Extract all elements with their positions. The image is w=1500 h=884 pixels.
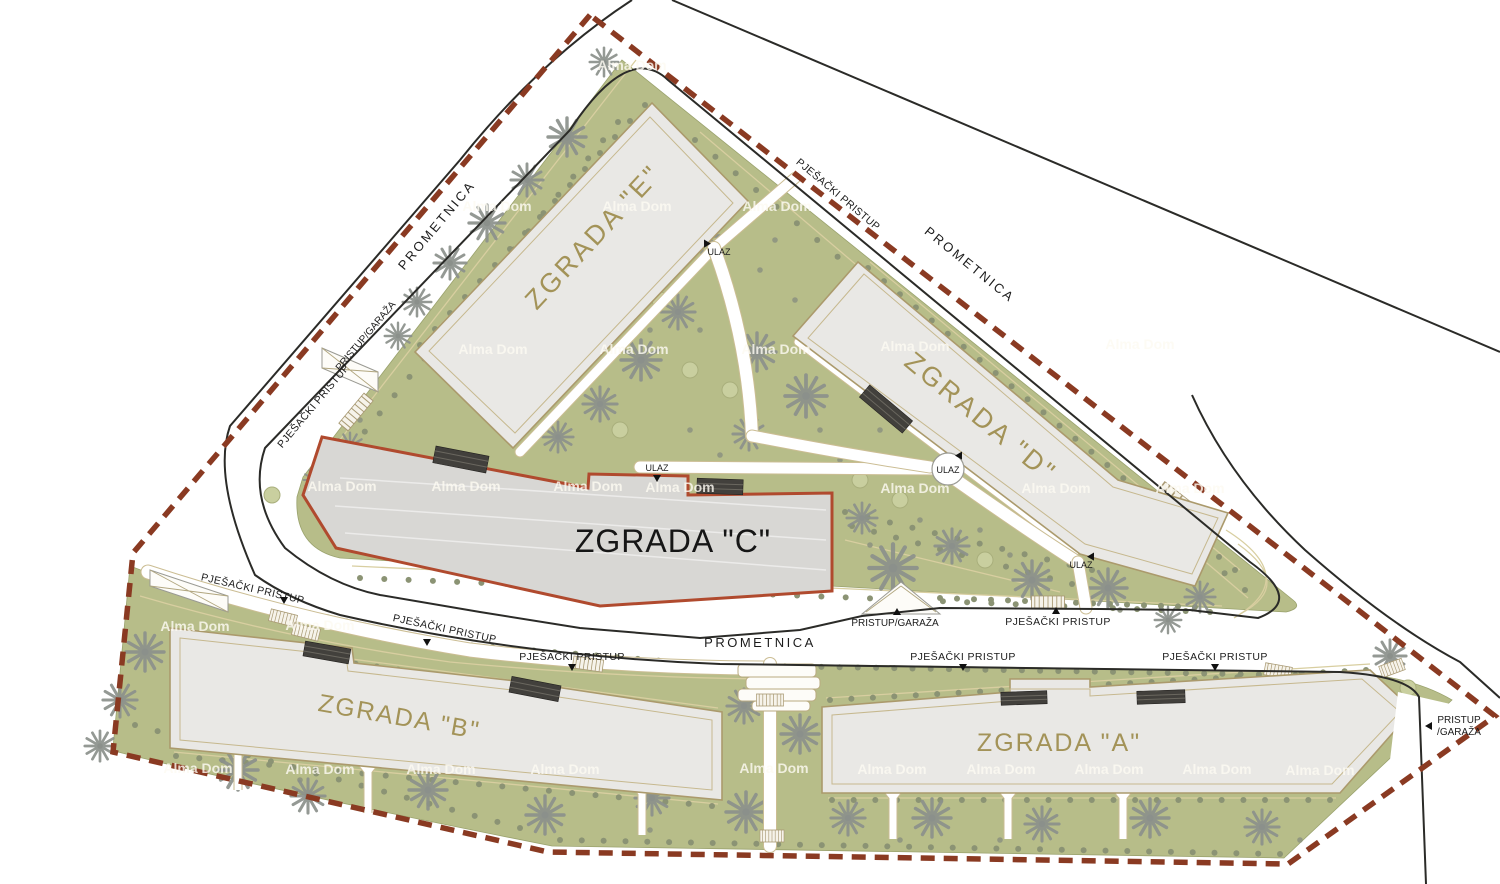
road-label-east: PROMETNICA (922, 224, 1018, 306)
hedge-dot (579, 837, 585, 843)
hedge-dot (1255, 851, 1261, 857)
hedge-dot (829, 797, 835, 803)
hedge-dot (870, 695, 876, 701)
hedge-dot (381, 576, 387, 582)
hedge-dot (1262, 797, 1268, 803)
shrub-dot (917, 517, 923, 523)
hedge-dot (794, 220, 800, 226)
hedge-dot (155, 728, 161, 734)
watermark-text: Alma Dom (553, 478, 622, 494)
stairs-icon (1032, 596, 1065, 608)
hedge-dot (971, 596, 977, 602)
watermark-text: Alma Dom (599, 341, 668, 357)
hedge-dot (937, 595, 943, 601)
stairs-icon (757, 694, 784, 706)
hedge-dot (644, 839, 650, 845)
hedge-dot (863, 843, 869, 849)
hedge-dot (406, 577, 412, 583)
site-plan-page: PROMETNICA PROMETNICA PROMETNICA PJEŠAČK… (0, 0, 1500, 884)
hedge-dot (981, 797, 987, 803)
hedge-dot (449, 807, 455, 813)
shrub-dot (877, 427, 883, 433)
hedge-dot (1141, 602, 1147, 608)
hedge-dot (1175, 603, 1181, 609)
watermark-text: Alma Dom (742, 198, 811, 214)
watermark-text: Alma Dom (645, 479, 714, 495)
hedge-dot (842, 509, 848, 515)
hedge-dot (1232, 567, 1238, 573)
shrub-dot (717, 452, 723, 458)
watermark-text: Alma Dom (163, 760, 232, 776)
hedge-dot (1168, 849, 1174, 855)
hedge-dot (934, 691, 940, 697)
hedge-dot (585, 155, 591, 161)
hedge-dot (988, 597, 994, 603)
watermark-text: Alma Dom (880, 338, 949, 354)
hedge-dot (819, 842, 825, 848)
bush-icon (977, 552, 993, 568)
watermark-text: Alma Dom (739, 760, 808, 776)
shrub-dot (997, 837, 1003, 843)
shrub-dot (977, 527, 983, 533)
hedge-dot (600, 137, 606, 143)
hedge-dot (887, 520, 893, 526)
hedge-dot (1005, 597, 1011, 603)
hedge-dot (906, 844, 912, 850)
pedestrian-access-label-south-1: PJEŠAČKI PRISTUP (519, 650, 625, 663)
hedge-dot (733, 170, 739, 176)
watermark-text: Alma Dom (1182, 761, 1251, 777)
hedge-dot (377, 410, 383, 416)
hedge-dot (909, 525, 915, 531)
hedge-dot (709, 803, 715, 809)
watermark-text: Alma Dom (530, 761, 599, 777)
shrub-dot (1297, 837, 1303, 843)
hedge-dot (517, 825, 523, 831)
hedge-dot (557, 837, 563, 843)
hedge-dot (392, 392, 398, 398)
hedge-dot (692, 137, 698, 143)
hedge-dot (362, 429, 368, 435)
hedge-dot (1013, 601, 1019, 607)
hedge-dot (1175, 797, 1181, 803)
hedge-dot (381, 789, 387, 795)
hedge-dot (1069, 581, 1075, 587)
hedge-dot (1212, 850, 1218, 856)
hedge-dot (1104, 462, 1110, 468)
hedge-dot (570, 174, 576, 180)
hedge-dot (1305, 797, 1311, 803)
hedge-dot (1041, 409, 1047, 415)
hedge-dot (407, 374, 413, 380)
hedge-dot (1219, 797, 1225, 803)
hedge-dot (884, 843, 890, 849)
hedge-dot (383, 773, 389, 779)
hedge-dot (959, 797, 965, 803)
hedge-dot (1081, 847, 1087, 853)
hedge-dot (494, 819, 500, 825)
hedge-dot (1072, 436, 1078, 442)
hedge-dot (950, 845, 956, 851)
watermark-text: Alma Dom (857, 761, 926, 777)
hedge-dot (499, 783, 505, 789)
hedge-dot (1219, 671, 1225, 677)
hedge-dot (1277, 851, 1283, 857)
shrub-dot (867, 542, 873, 548)
shrub-dot (687, 427, 693, 433)
hedge-dot (1146, 849, 1152, 855)
hedge-dot (1233, 850, 1239, 856)
hedge-dot (954, 596, 960, 602)
hedge-dot (1197, 797, 1203, 803)
watermark-text: Alma Dom (880, 480, 949, 496)
hedge-dot (993, 846, 999, 852)
hedge-dot (173, 753, 179, 759)
hedge-dot (569, 790, 575, 796)
watermark-text: Alma Dom (1155, 480, 1224, 496)
watermark-text: Alma Dom (406, 761, 475, 777)
hedge-dot (891, 693, 897, 699)
hedge-dot (915, 540, 921, 546)
hedge-dot (430, 578, 436, 584)
building-a-label: ZGRADA "A" (977, 729, 1141, 757)
hedge-dot (623, 838, 629, 844)
hedge-dot (1240, 797, 1246, 803)
pedestrian-access-label-central: PJEŠAČKI PRISTUP (1005, 615, 1111, 628)
shrub-dot (897, 837, 903, 843)
watermark-text: Alma Dom (741, 341, 810, 357)
hedge-dot (835, 254, 841, 260)
hedge-dot (1044, 557, 1050, 563)
hedge-dot (688, 840, 694, 846)
hedge-dot (1059, 847, 1065, 853)
entrance-label-building-d-circle: ULAZ (936, 465, 960, 475)
hedge-dot (893, 535, 899, 541)
hedge-dot (336, 777, 342, 783)
hedge-dot (841, 843, 847, 849)
hedge-dot (732, 840, 738, 846)
watermark-text: Alma Dom (1021, 480, 1090, 496)
hedge-dot (712, 154, 718, 160)
site-plan-canvas: PROMETNICA PROMETNICA PROMETNICA PJEŠAČK… (0, 0, 1500, 884)
hedge-dot (848, 696, 854, 702)
pedestrian-access-label-south-2: PJEŠAČKI PRISTUP (910, 650, 1016, 663)
hedge-dot (1022, 598, 1028, 604)
hedge-dot (1073, 600, 1079, 606)
hedge-dot (1124, 602, 1130, 608)
hedge-dot (686, 801, 692, 807)
entrance-label-building-c: ULAZ (645, 463, 669, 473)
hedge-dot (268, 758, 274, 764)
hedge-dot (1242, 587, 1248, 593)
bush-icon (722, 382, 738, 398)
watermark-text: Alma Dom (458, 341, 527, 357)
hedge-dot (1067, 797, 1073, 803)
garage-access-label-east-line1: PRISTUP (1437, 715, 1481, 726)
hedge-dot (867, 595, 873, 601)
hedge-dot (1022, 551, 1028, 557)
watermark-text: Alma Dom (285, 617, 354, 633)
hedge-dot (555, 192, 561, 198)
palm-tree-icon (85, 731, 115, 761)
watermark-text: Alma Dom (966, 761, 1035, 777)
hedge-dot (1015, 846, 1021, 852)
hedge-dot (916, 797, 922, 803)
hedge-dot (453, 779, 459, 785)
watermark-text: Alma Dom (160, 618, 229, 634)
watermark-text: Alma Dom (307, 478, 376, 494)
watermark-text: Alma Dom (285, 761, 354, 777)
hedge-dot (1201, 671, 1207, 677)
hedge-dot (472, 813, 478, 819)
hedge-dot (1132, 797, 1138, 803)
hedge-dot (710, 840, 716, 846)
hedge-dot (913, 692, 919, 698)
road-label-south: PROMETNICA (704, 635, 816, 650)
watermark-text: Alma Dom (1105, 336, 1174, 352)
hedge-dot (615, 119, 621, 125)
shrub-dot (647, 827, 653, 833)
hedge-dot (1037, 846, 1043, 852)
watermark-text: Alma Dom (1074, 761, 1143, 777)
hedge-dot (1183, 670, 1189, 676)
stairs-icon (760, 830, 784, 842)
shrub-dot (1007, 552, 1013, 558)
palm-tree-icon (403, 288, 432, 317)
watermark-text: Alma Dom (597, 57, 666, 73)
garage-access-label-central: PRISTUP/GARAŽA (851, 616, 939, 629)
hedge-dot (1216, 554, 1222, 560)
hedge-dot (1124, 848, 1130, 854)
hedge-dot (977, 541, 983, 547)
watermark-text: Alma Dom (1285, 762, 1354, 778)
hedge-dot (1089, 797, 1095, 803)
hedge-dot (404, 795, 410, 801)
hedge-dot (1190, 849, 1196, 855)
hedge-dot (843, 594, 849, 600)
shrub-dot (817, 427, 823, 433)
building-c-label: ZGRADA "C" (575, 523, 771, 559)
hedge-dot (593, 792, 599, 798)
watermark-text: Alma Dom (462, 198, 531, 214)
hedge-dot (1003, 564, 1009, 570)
hedge-dot (132, 722, 138, 728)
shrub-dot (772, 237, 778, 243)
hedge-dot (1111, 797, 1117, 803)
hedge-dot (476, 781, 482, 787)
hedge-dot (818, 594, 824, 600)
pedestrian-access-label-south-3: PJEŠAČKI PRISTUP (1162, 650, 1268, 663)
hedge-dot (1284, 797, 1290, 803)
hedge-dot (814, 237, 820, 243)
hedge-dot (616, 794, 622, 800)
hedge-dot (357, 575, 363, 581)
bush-icon (682, 362, 698, 378)
hedge-dot (753, 187, 759, 193)
garage-access-label-east-line2: /GARAŽA (1437, 725, 1481, 738)
hedge-dot (601, 838, 607, 844)
bush-icon (264, 487, 280, 503)
shrub-dot (647, 327, 653, 333)
hedge-dot (928, 844, 934, 850)
hedge-dot (523, 786, 529, 792)
hedge-dot (1183, 608, 1189, 614)
bush-icon (612, 422, 628, 438)
entrance-label-building-d-south: ULAZ (1069, 560, 1093, 570)
watermark-text: Alma Dom (602, 198, 671, 214)
hedge-dot (1088, 449, 1094, 455)
hedge-dot (972, 845, 978, 851)
hedge-dot (666, 839, 672, 845)
entrance-label-building-e: ULAZ (707, 247, 731, 257)
hedge-dot (546, 788, 552, 794)
hedge-dot (872, 797, 878, 803)
hedge-dot (871, 529, 877, 535)
hedge-dot (753, 841, 759, 847)
hedge-dot (797, 842, 803, 848)
hedge-dot (1222, 570, 1228, 576)
hedge-dot (1024, 797, 1030, 803)
hedge-dot (956, 690, 962, 696)
hedge-dot (454, 579, 460, 585)
hedge-dot (1046, 797, 1052, 803)
hedge-dot (932, 530, 938, 536)
shrub-dot (697, 327, 703, 333)
hedge-dot (1057, 423, 1063, 429)
shrub-dot (792, 297, 798, 303)
watermark-text: Alma Dom (431, 478, 500, 494)
hedge-dot (1103, 848, 1109, 854)
hedge-dot (1327, 797, 1333, 803)
shrub-dot (757, 267, 763, 273)
hedge-dot (999, 546, 1005, 552)
hedge-dot (964, 599, 970, 605)
hedge-dot (827, 697, 833, 703)
